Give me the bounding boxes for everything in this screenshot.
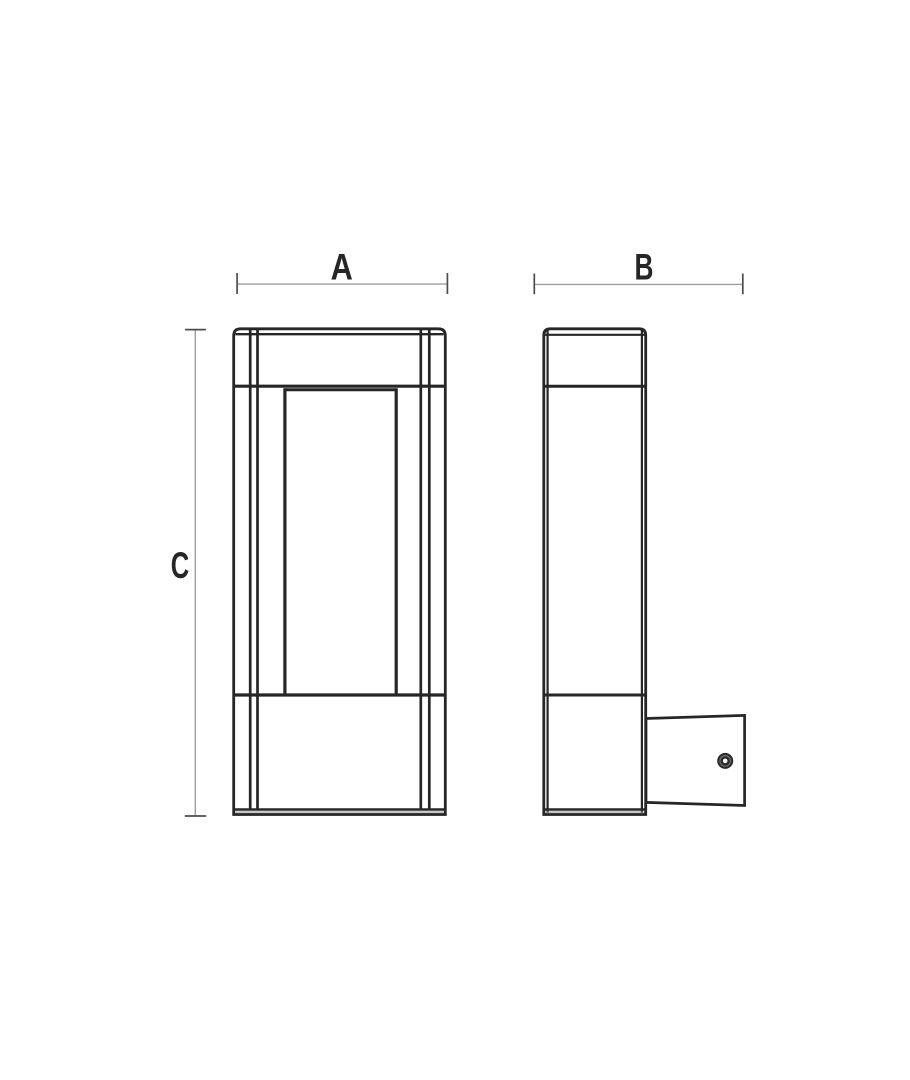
svg-text:C: C (171, 544, 189, 586)
svg-text:A: A (331, 247, 353, 288)
svg-text:B: B (635, 246, 654, 288)
